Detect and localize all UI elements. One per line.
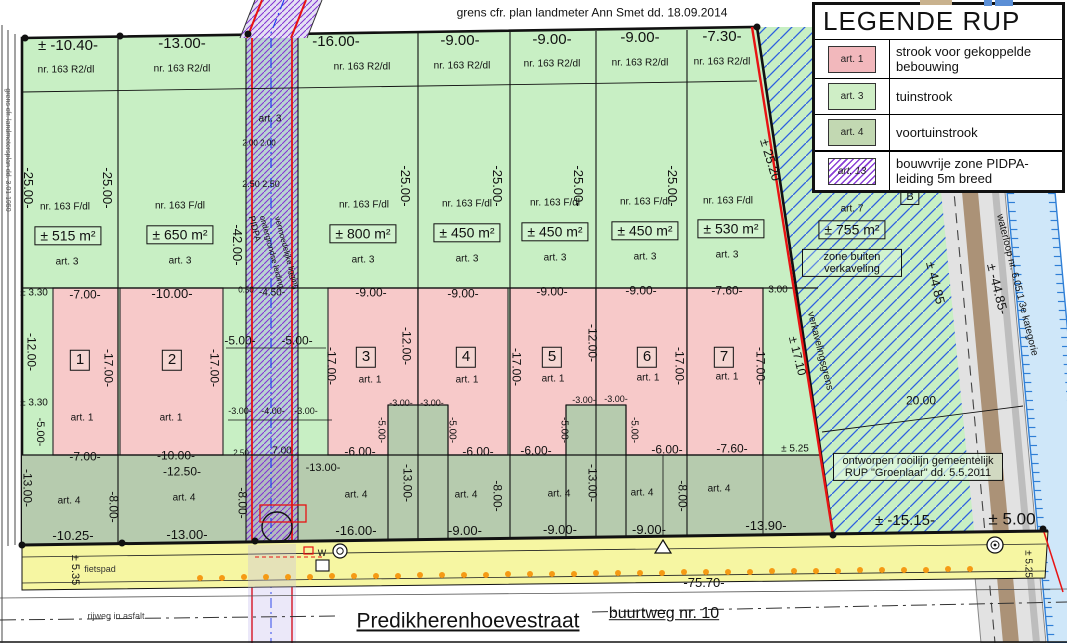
street-marker-dot bbox=[637, 570, 643, 576]
legend-swatch-art4: art. 4 bbox=[828, 119, 876, 146]
legend-edge-fragment-tan bbox=[920, 0, 952, 5]
legend-swatch-art13: art. 13 bbox=[828, 158, 876, 185]
legend: LEGENDE RUP art. 1 strook voor gekoppeld… bbox=[812, 2, 1065, 193]
legend-swatch-art1: art. 1 bbox=[828, 46, 876, 73]
road-edge-line bbox=[0, 589, 1067, 598]
legend-label-art4: voortuinstrook bbox=[889, 115, 1062, 150]
legend-row-art13: art. 13 bouwvrije zone PIDPA-leiding 5m … bbox=[815, 150, 1062, 190]
street-marker-dot bbox=[307, 574, 313, 580]
street-marker-dot bbox=[813, 568, 819, 574]
legend-label-art13: bouwvrije zone PIDPA-leiding 5m breed bbox=[889, 152, 1062, 190]
street-marker-dot bbox=[461, 572, 467, 578]
street-marker-dot bbox=[395, 573, 401, 579]
street-area bbox=[22, 531, 1048, 643]
legend-row-art1: art. 1 strook voor gekoppelde bebouwing bbox=[815, 39, 1062, 78]
street-marker-dot bbox=[923, 567, 929, 573]
legend-label-art3: tuinstrook bbox=[889, 79, 1062, 114]
street-marker-dot bbox=[747, 569, 753, 575]
legend-row-art4: art. 4 voortuinstrook bbox=[815, 114, 1062, 150]
street-marker-dot bbox=[549, 571, 555, 577]
legend-swatch-art3: art. 3 bbox=[828, 83, 876, 110]
street-marker-dot bbox=[197, 575, 203, 581]
legend-edge-fragment-blue2 bbox=[995, 0, 1013, 6]
street-marker-dot bbox=[725, 569, 731, 575]
street-marker-dot bbox=[483, 572, 489, 578]
legend-row-art3: art. 3 tuinstrook bbox=[815, 78, 1062, 114]
street-marker-dot bbox=[659, 570, 665, 576]
verkavelingsplan: grens cfr. plan landmeter Ann Smet dd. 1… bbox=[0, 0, 1067, 643]
legend-edge-fragment-blue1 bbox=[984, 0, 992, 6]
street-marker-dot bbox=[219, 575, 225, 581]
street-marker-dot bbox=[571, 571, 577, 577]
legend-label-art1: strook voor gekoppelde bebouwing bbox=[889, 40, 1062, 78]
street-marker-dot bbox=[285, 574, 291, 580]
legend-title: LEGENDE RUP bbox=[815, 5, 1062, 39]
street-marker-dot bbox=[373, 573, 379, 579]
street-marker-dot bbox=[835, 568, 841, 574]
street-marker-dot bbox=[901, 567, 907, 573]
